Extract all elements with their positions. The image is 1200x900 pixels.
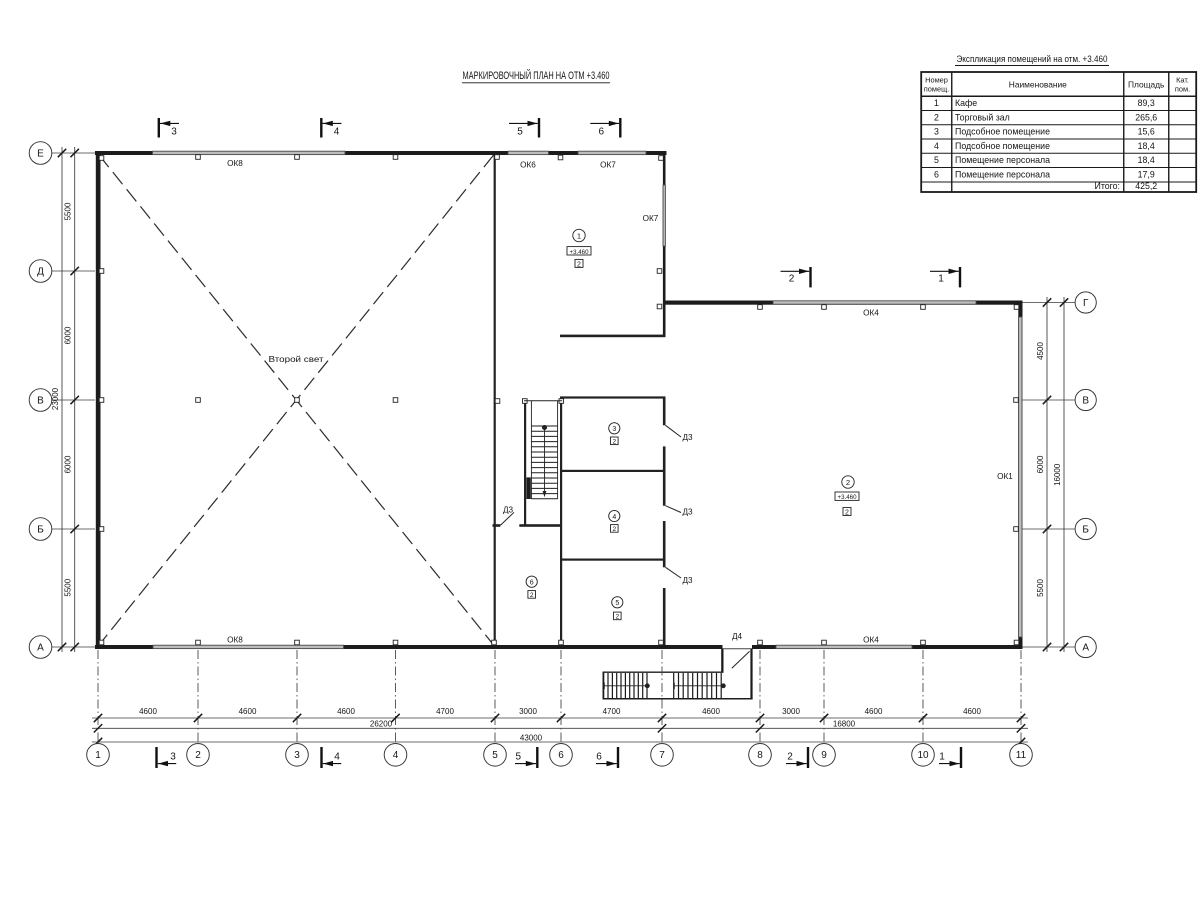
svg-text:1: 1 xyxy=(577,232,581,241)
svg-text:Экспликация помещений на отм.: Экспликация помещений на отм. +3.460 xyxy=(957,54,1108,64)
svg-text:6: 6 xyxy=(596,752,602,763)
svg-text:4700: 4700 xyxy=(603,707,621,716)
svg-text:5: 5 xyxy=(492,750,498,761)
svg-text:Г: Г xyxy=(1083,298,1089,309)
svg-text:3: 3 xyxy=(612,426,616,433)
svg-text:5: 5 xyxy=(934,155,939,165)
svg-text:ОК1: ОК1 xyxy=(997,472,1013,481)
svg-text:2: 2 xyxy=(615,614,619,621)
svg-text:15,6: 15,6 xyxy=(1138,127,1155,137)
svg-text:3: 3 xyxy=(171,126,177,137)
svg-text:2: 2 xyxy=(845,509,849,516)
svg-text:17,9: 17,9 xyxy=(1138,170,1155,180)
svg-text:Помещение персонала: Помещение персонала xyxy=(955,155,1050,165)
svg-text:6000: 6000 xyxy=(1036,455,1045,473)
svg-text:6: 6 xyxy=(599,126,605,137)
svg-text:2: 2 xyxy=(577,262,581,269)
svg-text:2: 2 xyxy=(789,274,795,285)
svg-text:Помещение персонала: Помещение персонала xyxy=(955,170,1050,180)
svg-text:Номер: Номер xyxy=(925,76,948,85)
svg-text:4600: 4600 xyxy=(963,707,981,716)
svg-text:23000: 23000 xyxy=(51,387,60,410)
svg-text:Площадь: Площадь xyxy=(1128,80,1165,90)
svg-text:3: 3 xyxy=(170,752,176,763)
svg-text:3000: 3000 xyxy=(782,707,800,716)
svg-text:2: 2 xyxy=(612,526,616,533)
svg-text:2: 2 xyxy=(934,113,939,123)
svg-text:425,2: 425,2 xyxy=(1135,181,1157,191)
svg-text:ОК8: ОК8 xyxy=(227,635,243,644)
svg-text:9: 9 xyxy=(821,750,827,761)
svg-text:Е: Е xyxy=(37,148,44,159)
svg-text:ОК6: ОК6 xyxy=(520,160,536,169)
svg-text:2: 2 xyxy=(846,478,850,487)
svg-text:2: 2 xyxy=(612,439,616,446)
svg-text:4700: 4700 xyxy=(436,707,454,716)
svg-text:В: В xyxy=(1082,395,1089,406)
svg-text:А: А xyxy=(37,642,44,653)
svg-text:+3.460: +3.460 xyxy=(838,494,857,501)
svg-text:2: 2 xyxy=(195,750,201,761)
svg-text:Б: Б xyxy=(37,524,44,535)
svg-text:11: 11 xyxy=(1016,750,1027,761)
svg-text:Б: Б xyxy=(1082,524,1089,535)
svg-text:43000: 43000 xyxy=(520,733,543,742)
svg-text:16800: 16800 xyxy=(833,720,856,729)
svg-text:ОК7: ОК7 xyxy=(600,160,616,169)
svg-text:4600: 4600 xyxy=(865,707,883,716)
svg-text:3: 3 xyxy=(934,127,939,137)
svg-text:3: 3 xyxy=(294,750,300,761)
svg-text:4: 4 xyxy=(393,750,399,761)
svg-text:2: 2 xyxy=(787,752,793,763)
svg-text:7: 7 xyxy=(659,750,665,761)
svg-text:1: 1 xyxy=(934,98,939,108)
svg-text:В: В xyxy=(37,395,44,406)
svg-text:4: 4 xyxy=(334,126,340,137)
svg-text:Наименование: Наименование xyxy=(1009,80,1067,90)
svg-text:265,6: 265,6 xyxy=(1135,113,1157,123)
svg-text:89,3: 89,3 xyxy=(1138,98,1155,108)
svg-text:5: 5 xyxy=(615,600,619,607)
svg-text:ОК7: ОК7 xyxy=(643,214,659,223)
svg-text:1: 1 xyxy=(95,750,101,761)
svg-text:Д3: Д3 xyxy=(682,508,693,517)
svg-text:4600: 4600 xyxy=(139,707,157,716)
svg-text:18,4: 18,4 xyxy=(1138,155,1155,165)
svg-text:Кафе: Кафе xyxy=(955,98,977,108)
svg-text:4: 4 xyxy=(334,752,340,763)
svg-text:Д3: Д3 xyxy=(682,576,693,585)
svg-text:4500: 4500 xyxy=(1036,342,1045,360)
svg-text:6: 6 xyxy=(558,750,564,761)
svg-text:Кат.: Кат. xyxy=(1176,76,1189,85)
svg-text:ОК8: ОК8 xyxy=(227,159,243,168)
svg-text:Д3: Д3 xyxy=(503,506,514,515)
svg-text:ОК4: ОК4 xyxy=(863,308,879,317)
svg-text:4: 4 xyxy=(934,141,939,151)
svg-text:Д: Д xyxy=(37,266,44,277)
svg-text:26200: 26200 xyxy=(370,720,393,729)
svg-text:10: 10 xyxy=(917,750,929,761)
svg-text:А: А xyxy=(1082,642,1089,653)
svg-text:Подсобное помещение: Подсобное помещение xyxy=(955,127,1050,137)
svg-text:6: 6 xyxy=(934,170,939,180)
svg-text:пом.: пом. xyxy=(1175,85,1190,94)
svg-text:16000: 16000 xyxy=(1053,463,1062,486)
svg-text:помещ.: помещ. xyxy=(924,85,949,94)
svg-text:Второй свет: Второй свет xyxy=(269,354,324,364)
svg-text:6000: 6000 xyxy=(64,326,73,344)
svg-text:Итого:: Итого: xyxy=(1095,181,1121,191)
svg-text:Д4: Д4 xyxy=(732,632,743,641)
svg-text:6000: 6000 xyxy=(64,455,73,473)
svg-text:Д3: Д3 xyxy=(682,433,693,442)
svg-text:2: 2 xyxy=(530,592,534,599)
svg-text:5: 5 xyxy=(516,752,522,763)
svg-text:5500: 5500 xyxy=(64,578,73,596)
svg-text:4600: 4600 xyxy=(702,707,720,716)
svg-text:1: 1 xyxy=(938,274,944,285)
svg-text:МАРКИРОВОЧНЫЙ ПЛАН НА ОТМ +3.4: МАРКИРОВОЧНЫЙ ПЛАН НА ОТМ +3.460 xyxy=(463,69,610,82)
svg-text:5500: 5500 xyxy=(1036,579,1045,597)
svg-text:Подсобное помещение: Подсобное помещение xyxy=(955,141,1050,151)
svg-text:+3.460: +3.460 xyxy=(570,249,589,256)
svg-text:18,4: 18,4 xyxy=(1138,141,1155,151)
svg-text:ОК4: ОК4 xyxy=(863,635,879,644)
svg-text:6: 6 xyxy=(530,580,534,587)
svg-text:5500: 5500 xyxy=(64,202,73,220)
svg-text:1: 1 xyxy=(939,752,945,763)
svg-text:5: 5 xyxy=(517,126,523,137)
svg-text:Торговый зал: Торговый зал xyxy=(955,113,1010,123)
svg-text:4600: 4600 xyxy=(239,707,257,716)
svg-text:3000: 3000 xyxy=(519,707,537,716)
svg-text:8: 8 xyxy=(757,750,763,761)
svg-text:4: 4 xyxy=(612,514,616,521)
svg-text:4600: 4600 xyxy=(337,707,355,716)
